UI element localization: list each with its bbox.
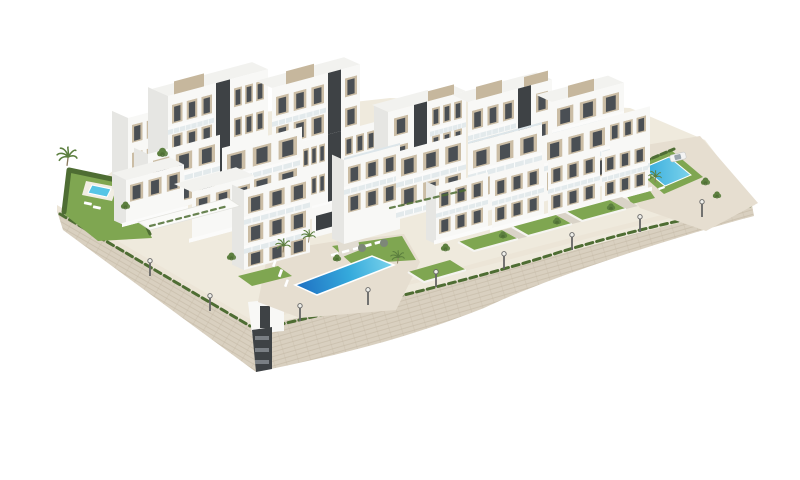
parasol — [380, 239, 388, 247]
render-canvas — [0, 0, 800, 480]
parasol — [358, 244, 366, 252]
architectural-render — [0, 0, 800, 480]
palm-tree — [57, 147, 77, 166]
